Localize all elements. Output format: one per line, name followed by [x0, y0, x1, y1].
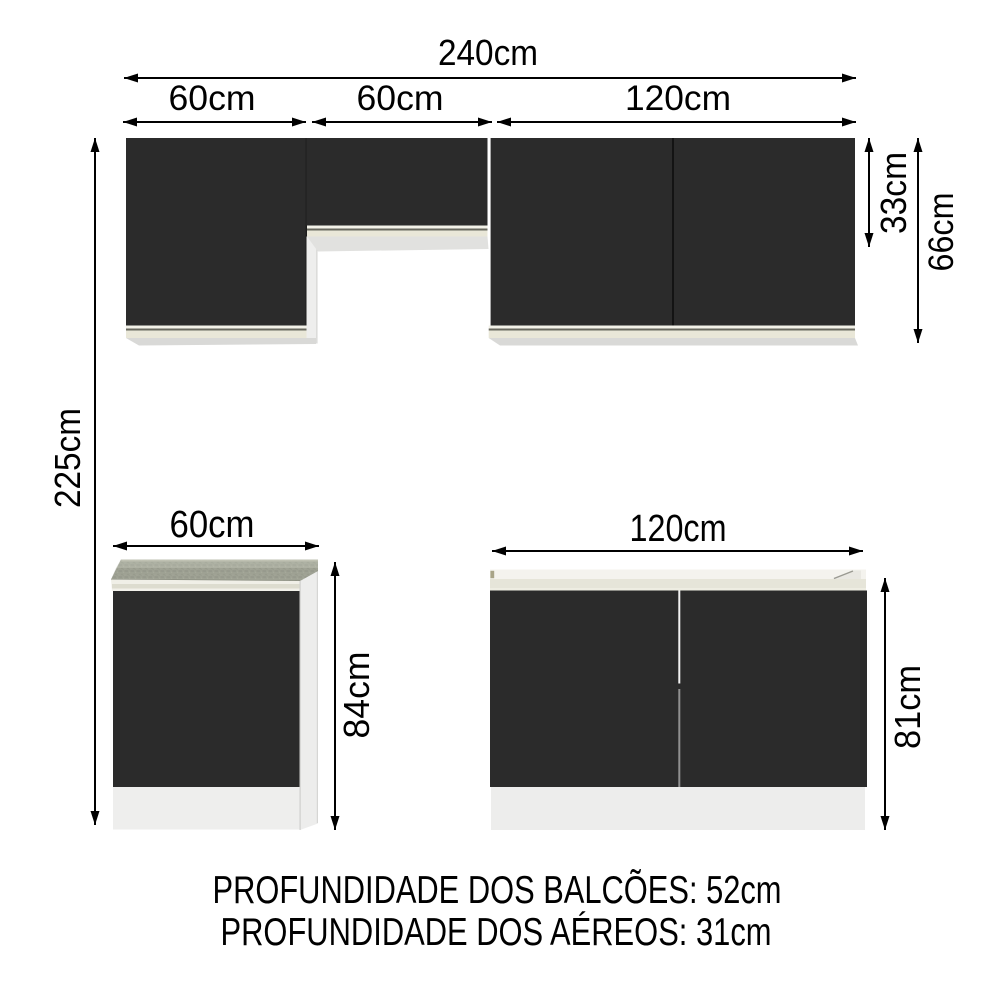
- svg-text:240cm: 240cm: [438, 32, 538, 73]
- svg-text:225cm: 225cm: [47, 408, 88, 508]
- svg-text:60cm: 60cm: [169, 79, 256, 118]
- svg-text:81cm: 81cm: [887, 665, 928, 749]
- svg-text:84cm: 84cm: [336, 652, 377, 739]
- svg-text:120cm: 120cm: [630, 508, 727, 550]
- svg-text:120cm: 120cm: [625, 79, 731, 118]
- svg-text:PROFUNDIDADE DOS BALCÕES: 52cm: PROFUNDIDADE DOS BALCÕES: 52cm: [213, 868, 782, 912]
- svg-text:60cm: 60cm: [170, 504, 255, 546]
- svg-text:33cm: 33cm: [873, 152, 914, 234]
- svg-text:66cm: 66cm: [922, 193, 961, 272]
- svg-text:PROFUNDIDADE DOS AÉREOS: 31cm: PROFUNDIDADE DOS AÉREOS: 31cm: [221, 911, 772, 954]
- svg-text:60cm: 60cm: [357, 79, 444, 118]
